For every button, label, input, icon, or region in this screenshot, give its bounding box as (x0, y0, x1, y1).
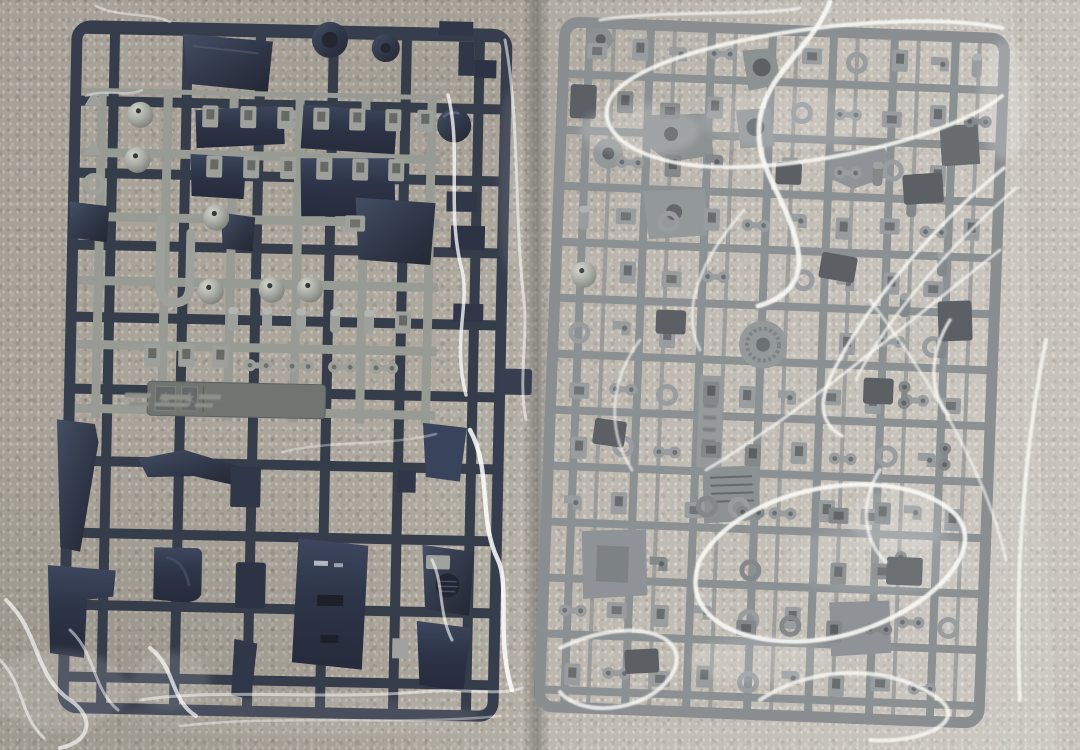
left-bag (0, 0, 539, 750)
photo-scene (0, 0, 1080, 750)
photo-illustration (0, 0, 1080, 750)
left-bag-veil (0, 0, 535, 750)
right-bag (535, 0, 1058, 750)
